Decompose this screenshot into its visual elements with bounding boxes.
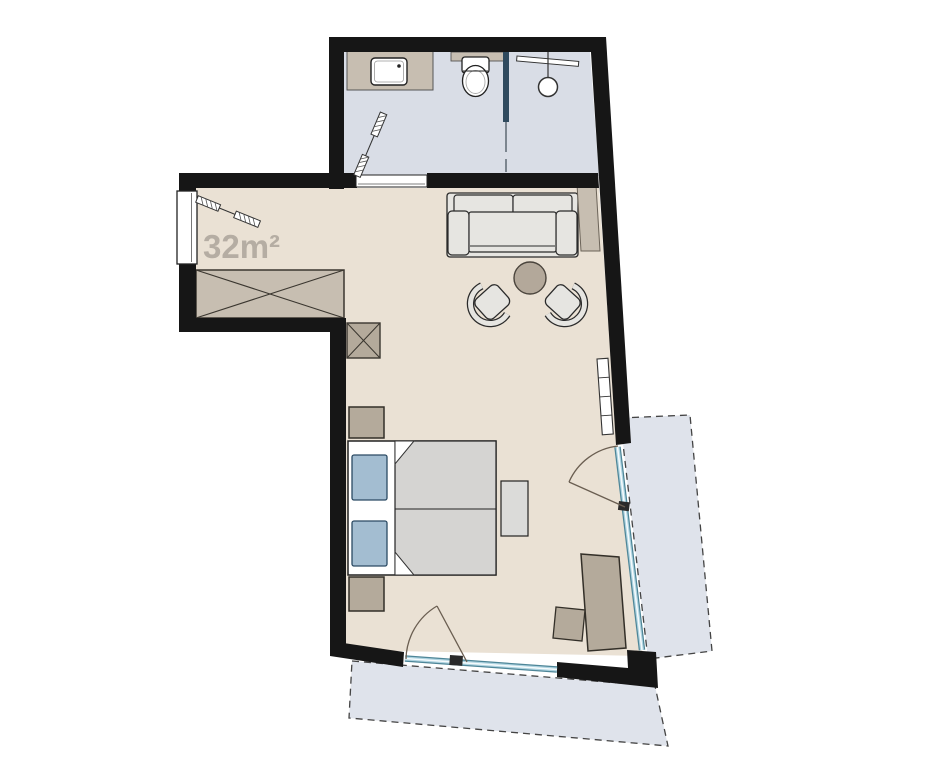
faucet-icon: [397, 64, 401, 68]
sink: [371, 58, 407, 85]
bathroom-door-threshold: [356, 175, 427, 187]
entry-window: [177, 191, 197, 264]
wall-bath-left: [329, 37, 344, 189]
floor-plan-page: 32m²: [0, 0, 945, 768]
pillow: [352, 455, 387, 500]
console-table: [577, 184, 600, 251]
sofa: [447, 193, 578, 257]
bed-blanket: [395, 441, 496, 575]
wall-divider-right: [427, 173, 599, 188]
bench: [501, 481, 528, 536]
bed: [348, 441, 496, 575]
wall-top: [329, 37, 606, 52]
desk-chair: [553, 607, 585, 641]
nightstand-bottom: [349, 577, 384, 611]
pillow: [352, 521, 387, 566]
desk: [581, 554, 626, 651]
floor-plan-svg: 32m²: [0, 0, 945, 768]
wall-divider-left: [179, 173, 357, 188]
storage-box: [347, 323, 380, 358]
door-mullion-block: [449, 655, 463, 666]
wall-alcove: [179, 318, 346, 332]
area-label: 32m²: [203, 228, 280, 265]
wall-left-top: [179, 173, 196, 192]
nightstand-top: [349, 407, 384, 438]
coffee-table: [514, 262, 546, 294]
wardrobe: [196, 270, 344, 318]
wall-left-lower: [330, 318, 346, 648]
